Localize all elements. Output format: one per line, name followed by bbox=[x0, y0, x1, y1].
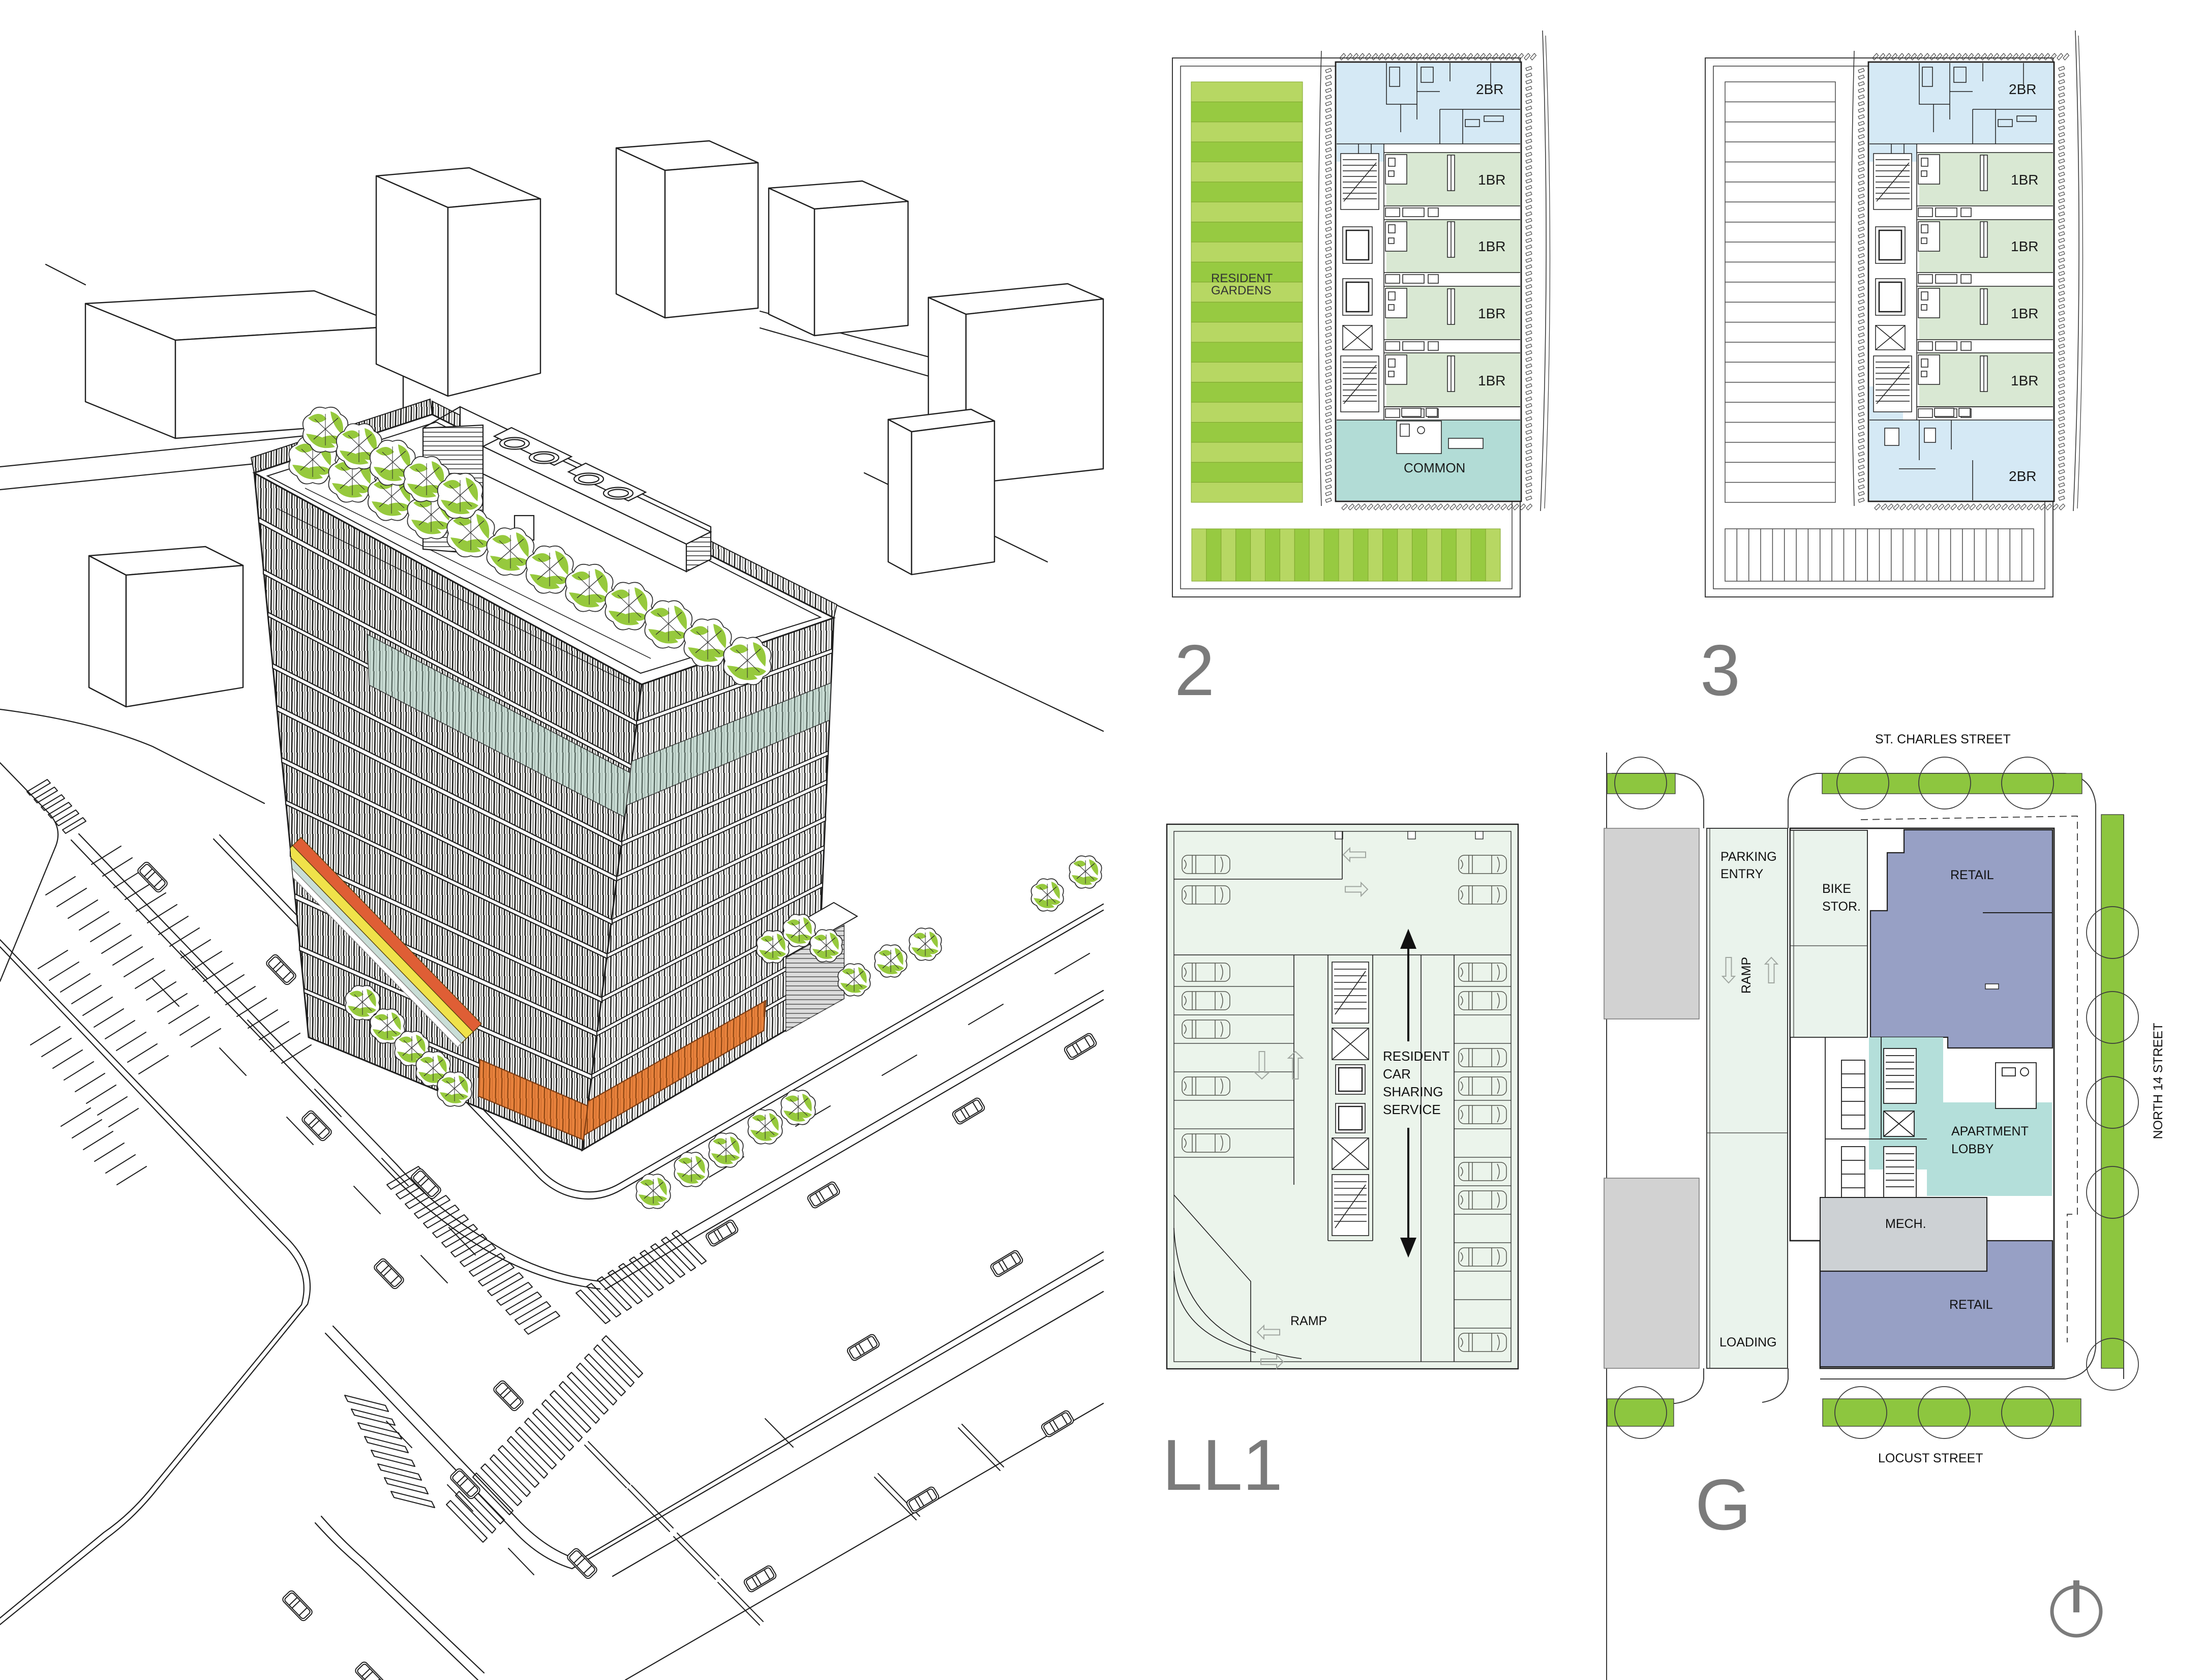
svg-text:SERVICE: SERVICE bbox=[1383, 1102, 1441, 1117]
svg-text:RAMP: RAMP bbox=[1290, 1314, 1327, 1328]
svg-text:ENTRY: ENTRY bbox=[1720, 867, 1764, 881]
svg-text:1BR: 1BR bbox=[1478, 172, 1505, 188]
svg-text:LOCUST STREET: LOCUST STREET bbox=[1878, 1451, 1983, 1465]
svg-text:PARKING: PARKING bbox=[1720, 850, 1777, 864]
svg-text:RESIDENT: RESIDENT bbox=[1211, 272, 1273, 285]
svg-text:ST. CHARLES STREET: ST. CHARLES STREET bbox=[1875, 732, 2011, 746]
svg-text:1BR: 1BR bbox=[2011, 306, 2038, 321]
svg-text:3: 3 bbox=[1700, 630, 1740, 711]
svg-text:MECH.: MECH. bbox=[1885, 1217, 1926, 1231]
svg-text:LOADING: LOADING bbox=[1719, 1335, 1777, 1349]
svg-text:2BR: 2BR bbox=[2009, 81, 2036, 97]
svg-text:NORTH 14 STREET: NORTH 14 STREET bbox=[2151, 1023, 2165, 1139]
svg-text:2: 2 bbox=[1174, 630, 1215, 711]
svg-text:BIKE: BIKE bbox=[1822, 882, 1851, 896]
svg-text:2BR: 2BR bbox=[2009, 468, 2036, 484]
svg-text:1BR: 1BR bbox=[2011, 373, 2038, 388]
svg-text:APARTMENT: APARTMENT bbox=[1951, 1124, 2029, 1138]
svg-text:RESIDENT: RESIDENT bbox=[1383, 1048, 1450, 1064]
svg-text:2BR: 2BR bbox=[1476, 81, 1503, 97]
svg-text:1BR: 1BR bbox=[1478, 373, 1505, 388]
svg-text:SHARING: SHARING bbox=[1383, 1084, 1443, 1099]
svg-text:RAMP: RAMP bbox=[1739, 957, 1754, 994]
svg-text:STOR.: STOR. bbox=[1822, 899, 1861, 914]
svg-text:LOBBY: LOBBY bbox=[1951, 1142, 1994, 1156]
svg-text:RETAIL: RETAIL bbox=[1949, 1298, 1993, 1312]
svg-text:1BR: 1BR bbox=[1478, 238, 1505, 254]
svg-text:LL1: LL1 bbox=[1162, 1425, 1283, 1506]
svg-text:GARDENS: GARDENS bbox=[1211, 284, 1272, 297]
svg-text:1BR: 1BR bbox=[2011, 172, 2038, 188]
svg-text:CAR: CAR bbox=[1383, 1066, 1411, 1082]
svg-text:RETAIL: RETAIL bbox=[1950, 868, 1994, 882]
svg-text:G: G bbox=[1695, 1464, 1751, 1545]
svg-text:COMMON: COMMON bbox=[1404, 460, 1465, 475]
svg-text:1BR: 1BR bbox=[2011, 238, 2038, 254]
svg-text:1BR: 1BR bbox=[1478, 306, 1505, 321]
